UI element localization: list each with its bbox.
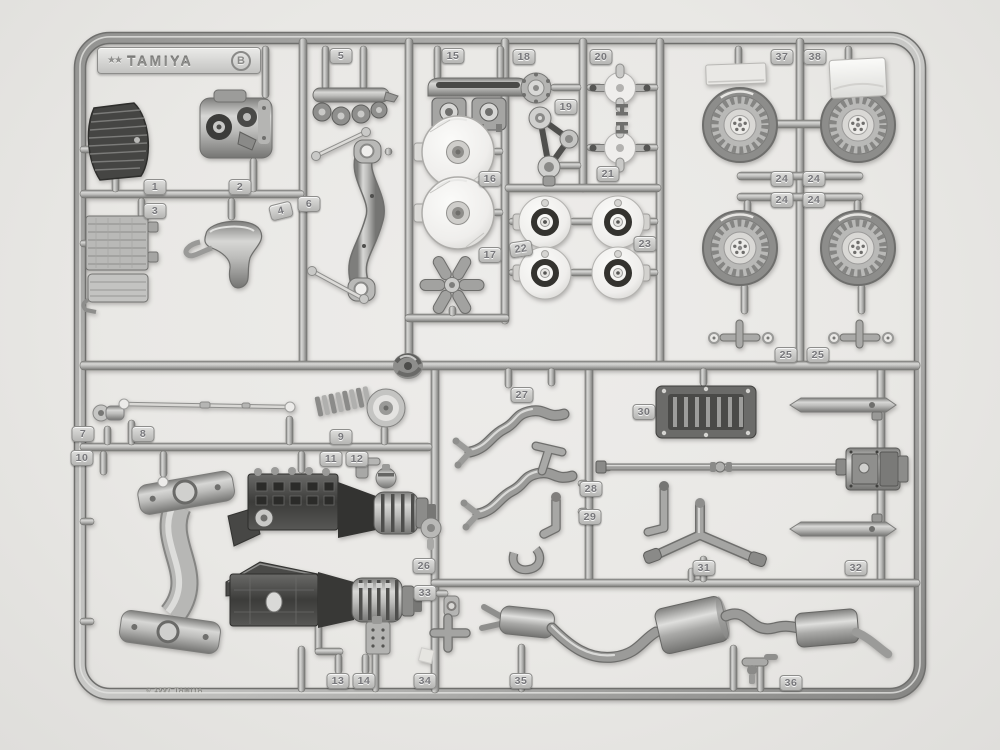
part-tag-25b: 25	[807, 347, 830, 363]
part-engine-upper	[228, 467, 436, 546]
part-tag-24c: 24	[771, 192, 794, 208]
part-driveshaft	[596, 459, 846, 475]
sprue-art	[0, 0, 1000, 750]
part-tag-25a: 25	[775, 347, 798, 363]
part-tag-35: 35	[510, 673, 533, 689]
part-tag-24d: 24	[803, 192, 826, 208]
part-tag-26: 26	[413, 558, 436, 574]
part-tag-14: 14	[353, 673, 376, 689]
part-tag-38: 38	[804, 49, 827, 65]
part-tag-8: 8	[132, 426, 155, 442]
part-tag-24a: 24	[771, 171, 794, 187]
part-tag-33: 33	[414, 585, 437, 601]
part-clip-small	[158, 477, 168, 487]
part-tag-11: 11	[320, 451, 343, 467]
part-radiator-3	[83, 216, 158, 312]
brand-name: TAMIYA	[127, 53, 193, 69]
sprue-letter-badge: B	[231, 51, 251, 71]
part-tag-31: 31	[693, 560, 716, 576]
part-tag-20: 20	[590, 49, 613, 65]
part-plate-37	[706, 63, 767, 85]
part-tie-rod-8	[119, 399, 295, 412]
part-t-fitting	[536, 446, 562, 471]
part-valve-cover-30	[656, 386, 756, 438]
part-grille-1	[88, 103, 148, 180]
part-tag-9: 9	[330, 429, 353, 445]
part-tag-5: 5	[330, 48, 353, 64]
part-axle-bracket-6	[348, 140, 381, 301]
tamiya-star-icon: ★★	[107, 55, 121, 66]
part-tag-21: 21	[597, 166, 620, 182]
part-clip-33	[444, 596, 459, 616]
part-bracket-28	[544, 492, 561, 534]
part-tag-19: 19	[555, 99, 578, 115]
part-front-cover-2	[200, 90, 272, 158]
part-tag-3: 3	[144, 203, 167, 219]
part-muffler-main	[653, 594, 733, 655]
part-leaf-spring-32b	[790, 514, 896, 536]
part-tag-15: 15	[442, 48, 465, 64]
tamiya-logo-plate: ★★ TAMIYA B	[97, 47, 261, 74]
part-tag-10: 10	[71, 450, 94, 466]
part-seat-4	[186, 221, 262, 288]
part-tag-34: 34	[414, 673, 437, 689]
part-belt-pulleys-19	[529, 107, 578, 186]
part-tag-1: 1	[144, 179, 167, 195]
part-tag-18: 18	[513, 49, 536, 65]
part-tag-30: 30	[633, 404, 656, 420]
part-plate-38	[829, 58, 887, 99]
part-tag-36: 36	[780, 675, 803, 691]
part-tag-32: 32	[845, 560, 868, 576]
part-elbow-7	[93, 405, 124, 421]
part-tag-37: 37	[771, 49, 794, 65]
part-tag-7: 7	[72, 426, 95, 442]
part-pipe-29	[513, 549, 540, 570]
part-tag-6: 6	[298, 196, 321, 212]
part-l-bracket	[648, 481, 669, 532]
part-transfer-case	[846, 448, 908, 490]
sprue-photo: ★★ TAMIYA B © 1997 TAMIYA 1 2 3 4 5 6 7 …	[0, 0, 1000, 750]
part-intake-hose-9	[314, 386, 405, 427]
part-engine-lower	[226, 562, 422, 628]
part-tag-12: 12	[346, 451, 369, 467]
part-crossmember-10	[118, 470, 236, 655]
part-pump-13-14	[366, 616, 390, 654]
sprue-knot	[393, 353, 423, 379]
part-tag-29: 29	[579, 509, 602, 525]
part-tag-13: 13	[327, 673, 350, 689]
part-exhaust-front-35	[482, 605, 656, 657]
part-leaf-spring-32a	[790, 398, 896, 420]
part-tag-22: 22	[508, 239, 533, 258]
part-tag-24b: 24	[803, 171, 826, 187]
part-tag-23: 23	[634, 236, 657, 252]
part-backing-plates-22-23	[513, 196, 650, 299]
part-tag-28: 28	[580, 481, 603, 497]
part-tag-17: 17	[479, 247, 502, 263]
copyright-text: © 1997 TAMIYA	[146, 687, 203, 694]
part-tag-27: 27	[511, 387, 534, 403]
part-intake-manifold-5	[313, 88, 398, 125]
part-tag-16: 16	[479, 171, 502, 187]
part-tag-2: 2	[229, 179, 252, 195]
part-exhaust-tail-36	[726, 608, 888, 684]
part-cross-34	[418, 618, 466, 663]
part-pulley-18	[521, 73, 551, 104]
